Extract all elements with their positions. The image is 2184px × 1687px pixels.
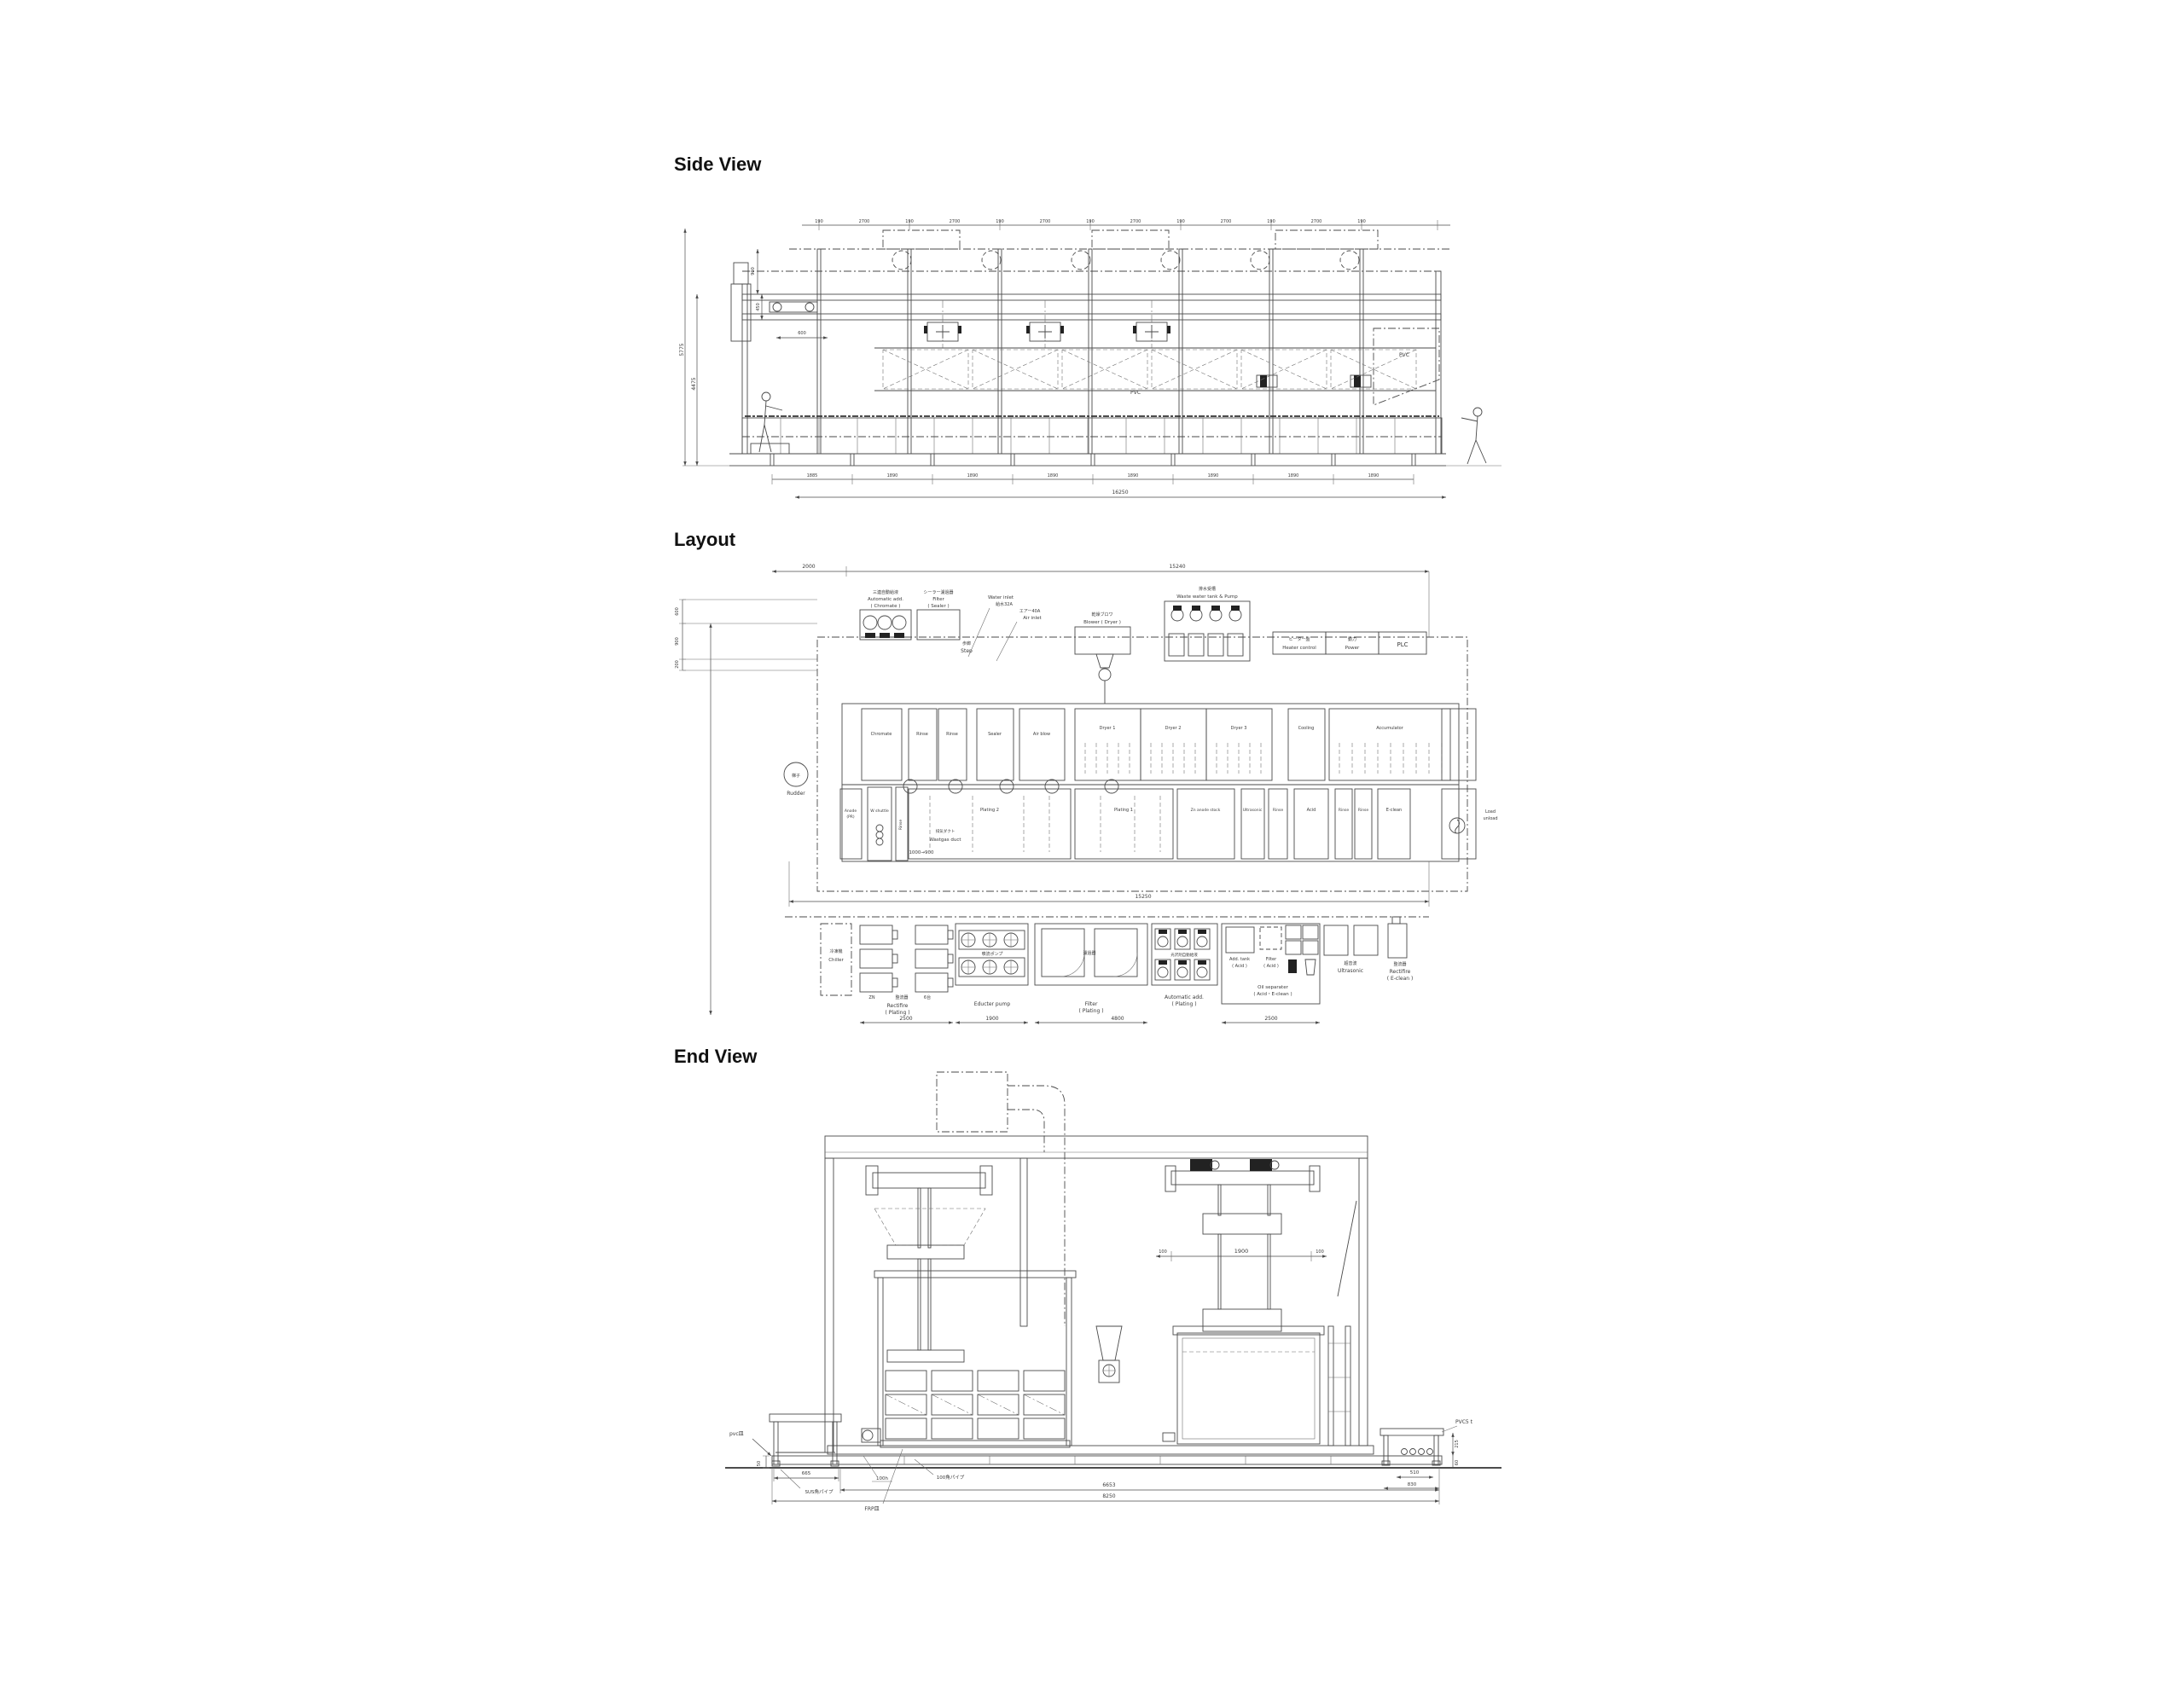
heater-control-label: Heater control — [1282, 646, 1316, 651]
tank-dryer-3: Dryer 3 — [1231, 726, 1247, 731]
chiller-unit: 冷凍機 Chiller — [821, 924, 851, 995]
filter-plating-jp: 濾過器 — [1083, 950, 1095, 956]
tank-e-clean: E-clean — [1386, 808, 1402, 813]
auto-add-chromate-en1: Automatic add. — [868, 597, 903, 602]
auto-add-plating-jp: 光沢剤自動給液 — [1170, 952, 1198, 958]
side-tank-row — [729, 416, 1446, 466]
end-exhaust-duct — [937, 1072, 1065, 1326]
side-top-dimensions: 190 190 190 190 190 190 190 2700 2700 27… — [802, 219, 1450, 230]
dim-col: 190 — [815, 219, 823, 224]
waste-water-jp: 排水受槽 — [1199, 586, 1216, 592]
conveyor — [770, 302, 817, 312]
dim-stand-w1: 510 — [1410, 1470, 1420, 1475]
tank-air-blow: Air blow — [1033, 732, 1050, 737]
rectifier-eclean-en1: Rectifire — [1390, 969, 1411, 975]
dim-col: 190 — [905, 219, 914, 224]
filter-sealer-en1: Filter — [932, 597, 944, 602]
dim-offset-width: 600 — [798, 331, 806, 336]
tank-sealer: Sealer — [988, 732, 1002, 737]
end-right-tank — [1163, 1326, 1324, 1444]
filter-sealer-unit: シーラー濾過器 Filter ( Sealer ) — [917, 589, 960, 640]
tank-cooling: Cooling — [1298, 726, 1315, 731]
dim-carrier: 1900 — [1234, 1248, 1249, 1255]
acid-service-group: Add. tank ( Acid ) Filter ( Acid ) Oil s… — [1222, 924, 1320, 1023]
tank-rinse: Rinse — [916, 732, 928, 737]
tank-accumulator: Accumulator — [1376, 726, 1404, 731]
layout-drawing: 2000 15240 600 900 200 歩廊 Step 三連自動給液 Au… — [665, 559, 1595, 1036]
dim-v2: 900 — [675, 637, 680, 646]
dim-overall-height: 5775 — [679, 343, 685, 356]
dim-bay-b: 1890 — [1368, 473, 1380, 478]
layout-bottom-dimension: 15250 — [785, 861, 1429, 917]
tank-zn-anode-stock: Zn anode stock — [1191, 808, 1221, 813]
chiller-label: Chiller — [828, 958, 844, 963]
auto-add-chromate-unit: 三連自動給液 Automatic add. ( Chromate ) — [860, 589, 911, 640]
dim-carrier-side: 100 — [1316, 1249, 1324, 1255]
dim-overall-width: 16250 — [1112, 490, 1128, 496]
dim-col: 190 — [1357, 219, 1366, 224]
auto-add-chromate-en2: ( Chromate ) — [871, 604, 901, 609]
load-hook-icon — [1449, 818, 1465, 833]
waste-water-unit: 排水受槽 Waste water tank & Pump — [1165, 586, 1250, 661]
plc-label: PLC — [1397, 641, 1408, 648]
blower-dryer-unit: 乾燥ブロワ Blower ( Dryer ) — [1075, 612, 1130, 704]
rudder-label: Rudder — [787, 791, 805, 797]
water-inlet-callout: Water inlet 給水32A — [968, 595, 1014, 657]
dim-overall-top: 15240 — [1169, 564, 1185, 570]
side-bottom-dimensions: 1885 1890 1890 1890 1890 1890 1890 1890 … — [772, 473, 1446, 497]
side-x-panels — [874, 348, 1436, 391]
power-jp: 動力 — [1348, 636, 1356, 642]
end-left-rack — [862, 1271, 1076, 1447]
anode-station-l1: Anode — [845, 809, 857, 814]
educter-label: Educter pump — [974, 1001, 1011, 1007]
dim-acid-w: 2500 — [1264, 1016, 1277, 1022]
end-base-frame — [725, 1446, 1501, 1468]
tank-acid: Acid — [1307, 808, 1316, 813]
side-left-dimensions: 5775 4475 900 450 600 — [679, 229, 828, 466]
rectifier-sub-count: 6台 — [924, 994, 931, 1000]
auto-add-plating-en1: Automatic add. — [1165, 994, 1204, 1000]
layout-machine: Chromate Rinse Rinse Sealer Air blow Dry… — [840, 704, 1498, 861]
control-panels: ヒーター盤 Heater control 動力 Power PLC — [1273, 632, 1426, 654]
dim-overall-w: 8250 — [1102, 1493, 1115, 1499]
heater-control-jp: ヒーター盤 — [1288, 636, 1310, 642]
dim-bay-b: 1890 — [1288, 473, 1299, 478]
dim-roof-height: 900 — [751, 267, 756, 275]
educter-jp: 噴流ポンプ — [982, 951, 1003, 957]
pvc5t-label: PVC5 t — [1455, 1419, 1473, 1425]
dim-bay: 2700 — [950, 219, 961, 224]
dim-inner-height: 4475 — [691, 377, 697, 390]
auto-add-plating-unit: 光沢剤自動給液 Automatic add. ( Plating ) — [1152, 924, 1217, 1007]
drawing-sheet: Side View Layout End View 190 190 190 19… — [0, 0, 2184, 1687]
end-frame — [825, 1136, 1368, 1452]
dim-overall-b: 15250 — [1135, 894, 1151, 900]
dim-left-h: 50 — [757, 1461, 762, 1466]
load-station-l1: Load — [1485, 809, 1496, 815]
dim-v1: 600 — [675, 607, 680, 616]
layout-left-dimensions: 600 900 200 — [675, 600, 817, 1015]
tank-dryer-1: Dryer 1 — [1100, 726, 1116, 731]
dim-stand-base-h: 60 — [1455, 1460, 1460, 1465]
tank-rinse: Rinse — [1358, 808, 1369, 813]
dim-carrier-side: 100 — [1159, 1249, 1167, 1255]
filter-plating-unit: 濾過器 Filter ( Plating ) 4800 — [1035, 924, 1147, 1023]
filter-plating-en2: ( Plating ) — [1078, 1008, 1103, 1014]
oil-separater-en2: ( Acid・E-clean ) — [1253, 992, 1292, 997]
dim-bay: 2700 — [1221, 219, 1232, 224]
power-label: Power — [1345, 646, 1360, 651]
waste-water-label: Waste water tank & Pump — [1176, 594, 1238, 600]
pipe100-label: 100角パイプ — [937, 1474, 965, 1481]
dim-bay-b: 1890 — [887, 473, 898, 478]
oil-separater-en1: Oil separater — [1258, 985, 1288, 990]
educter-pump-unit: 噴流ポンプ Educter pump 1900 — [955, 924, 1028, 1023]
dim-stand-w2: 830 — [1408, 1482, 1417, 1487]
tank-plating-1: Plating 1 — [1114, 808, 1133, 813]
dim-rectifier-w: 2500 — [899, 1016, 912, 1022]
anode-station-l2: (PR) — [846, 815, 855, 820]
tank-plating-2: Plating 2 — [980, 808, 999, 813]
ultrasonic-jp: 超音波 — [1344, 960, 1356, 966]
rudder-ladder: 梯子 Rudder — [784, 762, 808, 797]
filter-plating-en1: Filter — [1085, 1001, 1098, 1007]
rectifier-plating-en1: Rectifire — [887, 1003, 909, 1009]
shuttle-station: W shuttle — [870, 809, 889, 814]
dim-left-w: 665 — [802, 1471, 811, 1476]
load-station-l2: unload — [1483, 816, 1497, 821]
tank-ultrasonic: Ultrasonic — [1243, 808, 1263, 813]
side-roof-duct: PVC PVC — [742, 230, 1450, 405]
filter-sealer-en2: ( Sealer ) — [927, 604, 949, 609]
dim-bay-b: 1890 — [1048, 473, 1059, 478]
end-center-chute — [1096, 1326, 1122, 1383]
rectifier-plating-en2: ( Plating ) — [885, 1010, 909, 1016]
dim-bay-b: 1890 — [1128, 473, 1139, 478]
tank-rinse: Rinse — [946, 732, 958, 737]
chiller-jp: 冷凍機 — [829, 948, 842, 954]
dim-col: 190 — [996, 219, 1004, 224]
air-inlet-jp: エアー40A — [1019, 609, 1041, 614]
dim-col: 190 — [1086, 219, 1095, 224]
tank-rinse: Rinse — [1339, 808, 1350, 813]
side-view-title: Side View — [674, 154, 761, 176]
end-view-title: End View — [674, 1046, 757, 1068]
dim-bay-b: 1890 — [1208, 473, 1219, 478]
filter-acid-en2: ( Acid ) — [1263, 964, 1279, 969]
blower-jp: 乾燥ブロワ — [1091, 612, 1112, 617]
dim-bay: 2700 — [859, 219, 870, 224]
dim-educter-w: 1900 — [985, 1016, 998, 1022]
wastgas-duct-jp: 排気ダクト — [936, 828, 955, 834]
end-left-stand: pvc皿 — [729, 1414, 841, 1466]
dim-mid-w: 6653 — [1102, 1482, 1115, 1488]
frp-pan-label: FRP皿 — [864, 1506, 879, 1512]
exhaust-hood — [1374, 328, 1439, 405]
rinse-narrow-tank: Rinse — [898, 820, 903, 831]
rectifier-eclean-en2: ( E-clean ) — [1387, 976, 1414, 982]
filter-acid-en1: Filter — [1266, 957, 1277, 962]
auto-add-plating-en2: ( Plating ) — [1171, 1001, 1196, 1007]
tank-chromate: Chromate — [871, 732, 892, 737]
add-tank-acid-en2: ( Acid ) — [1232, 964, 1247, 969]
pvc-label: PVC — [1399, 352, 1409, 358]
add-tank-acid-en1: Add. tank — [1229, 957, 1250, 962]
rectifier-plating-unit: ZN 整流器 6台 Rectifire ( Plating ) 2500 — [860, 925, 953, 1023]
water-inlet-jp: 給水32A — [996, 601, 1013, 607]
dim-col: 190 — [1267, 219, 1275, 224]
blower-label: Blower ( Dryer ) — [1083, 620, 1121, 625]
transfer-pumps — [903, 780, 1118, 793]
rectifier-eclean-unit: 整流器 Rectifire ( E-clean ) — [1387, 917, 1414, 982]
dim-bay: 2700 — [1311, 219, 1322, 224]
layout-title: Layout — [674, 529, 735, 551]
sus-pipe-label: SUS角パイプ — [804, 1488, 834, 1495]
dim-filter-w: 4800 — [1111, 1016, 1124, 1022]
worker-figure-right — [1461, 408, 1486, 464]
rectifier-sub-zn: ZN — [868, 995, 874, 1000]
tank-rinse: Rinse — [1273, 808, 1284, 813]
rudder-jp: 梯子 — [792, 773, 800, 779]
air-inlet-callout: エアー40A Air inlet — [996, 609, 1043, 661]
step-label-jp: 歩廊 — [962, 641, 971, 646]
rectifier-sub-jp: 整流器 — [895, 994, 908, 1000]
water-inlet-label: Water inlet — [988, 595, 1014, 600]
ultrasonic-label: Ultrasonic — [1338, 968, 1363, 974]
filter-sealer-jp: シーラー濾過器 — [923, 589, 953, 595]
worker-figure-left — [751, 392, 789, 454]
ultrasonic-unit: 超音波 Ultrasonic — [1324, 925, 1378, 974]
auto-add-chromate-jp: 三連自動給液 — [873, 589, 898, 595]
end-right-carrier: 100 1900 100 — [1156, 1159, 1327, 1331]
dim-stand-h: 215 — [1455, 1440, 1460, 1448]
end-bottom-dimensions: 50 665 SUS角パイプ 100h 100角パイプ FRP皿 6653 82… — [757, 1433, 1460, 1512]
dim-left-offset: 2000 — [802, 564, 815, 570]
h100-label: 100h — [876, 1476, 888, 1481]
dim-bay-b-first: 1885 — [807, 473, 818, 478]
dim-bay-b: 1890 — [967, 473, 979, 478]
left-tower — [731, 284, 751, 341]
end-view-drawing: 100 1900 100 pvc皿 PVC5 t — [691, 1070, 1536, 1582]
tank-dryer-2: Dryer 2 — [1165, 726, 1182, 731]
wastgas-duct-label: Wastgas duct — [929, 838, 961, 843]
pvc-pan-label: pvc皿 — [729, 1431, 744, 1437]
duct-dimension: 1000→900 — [909, 850, 934, 855]
rectifier-eclean-jp: 整流器 — [1393, 961, 1406, 967]
side-view-drawing: 190 190 190 190 190 190 190 2700 2700 27… — [678, 213, 1510, 512]
end-left-carrier — [866, 1166, 992, 1362]
dim-col: 190 — [1176, 219, 1185, 224]
dim-beam-height: 450 — [756, 303, 761, 311]
dim-bay: 2700 — [1130, 219, 1141, 224]
dim-bay: 2700 — [1040, 219, 1051, 224]
air-inlet-label: Air inlet — [1023, 616, 1042, 621]
dim-v3: 200 — [675, 660, 680, 669]
